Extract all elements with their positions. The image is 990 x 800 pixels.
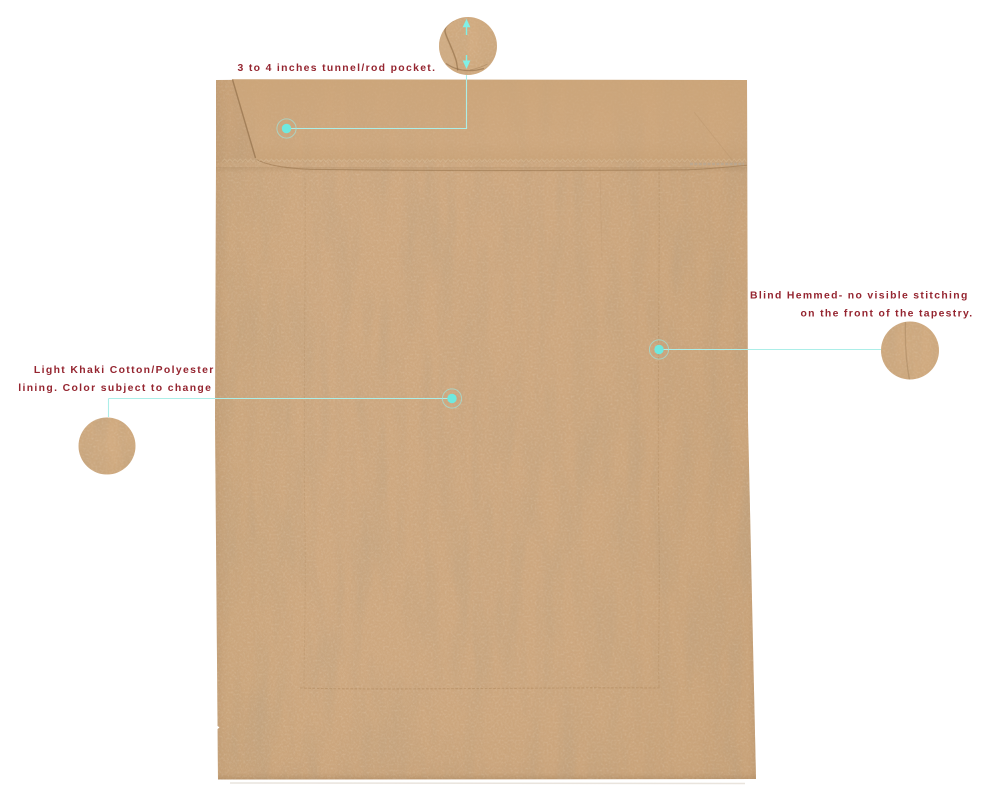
svg-text:3 to 4 inches tunnel/rod pocke: 3 to 4 inches tunnel/rod pocket. <box>238 63 436 74</box>
svg-text:lining. Color subject to chang: lining. Color subject to change <box>18 383 211 394</box>
svg-text:on the front of the tapestry.: on the front of the tapestry. <box>801 309 973 320</box>
svg-text:Blind Hemmed- no visible stitc: Blind Hemmed- no visible stitching <box>750 291 967 302</box>
svg-text:Light Khaki Cotton/Polyester: Light Khaki Cotton/Polyester <box>34 365 213 376</box>
